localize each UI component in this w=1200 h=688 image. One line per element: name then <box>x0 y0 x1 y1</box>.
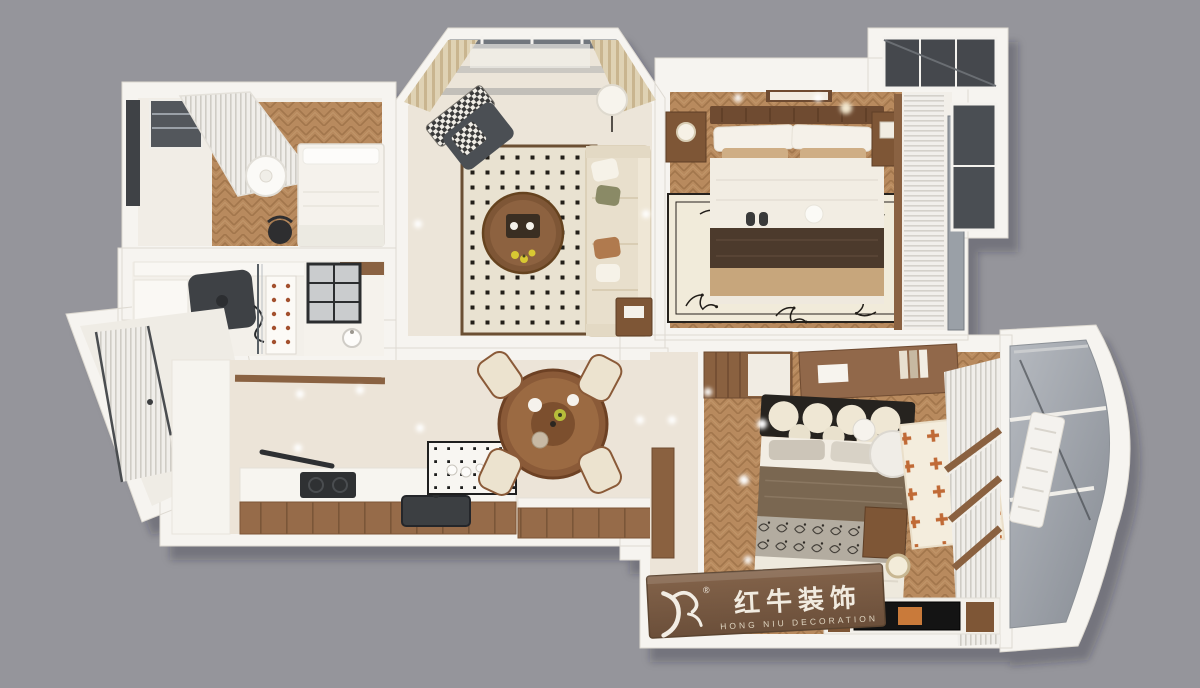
bedside-cabinet <box>863 507 908 559</box>
kitchen-sink <box>402 496 470 526</box>
master-bed <box>710 106 884 304</box>
floorplan-render: ® 红牛装饰 HONG NIU DECORATION <box>0 0 1200 688</box>
shoe-cabinet <box>652 448 674 558</box>
room-master-bedroom <box>666 90 964 330</box>
coffee-table <box>483 193 563 273</box>
table-lamp <box>887 555 909 577</box>
bathroom-grid-window <box>308 264 360 322</box>
sideboard <box>518 498 658 538</box>
room-small-bedroom <box>126 92 384 246</box>
tall-cabinets <box>172 360 230 534</box>
small-side-table <box>853 419 875 441</box>
display-cabinet <box>266 276 296 354</box>
bedroom1-chair <box>268 217 292 244</box>
floorplan-screenshot: ® 红牛装饰 HONG NIU DECORATION <box>0 0 1200 688</box>
side-table <box>616 298 652 336</box>
room-bathroom <box>304 262 384 356</box>
bedroom1-window <box>126 100 140 206</box>
room-kitchen-dining <box>172 348 658 538</box>
flower-pendant-lamp <box>246 156 286 196</box>
sheer-curtain <box>470 44 590 68</box>
room-living <box>404 36 656 336</box>
registered-mark: ® <box>703 585 711 595</box>
nightstand-left <box>666 112 706 162</box>
bedroom2-desk <box>799 344 959 400</box>
watermark-plaque: ® 红牛装饰 HONG NIU DECORATION <box>646 564 885 638</box>
wall-art-frame <box>766 90 832 102</box>
wardrobe <box>704 352 792 398</box>
bedroom1-bed <box>298 144 384 246</box>
